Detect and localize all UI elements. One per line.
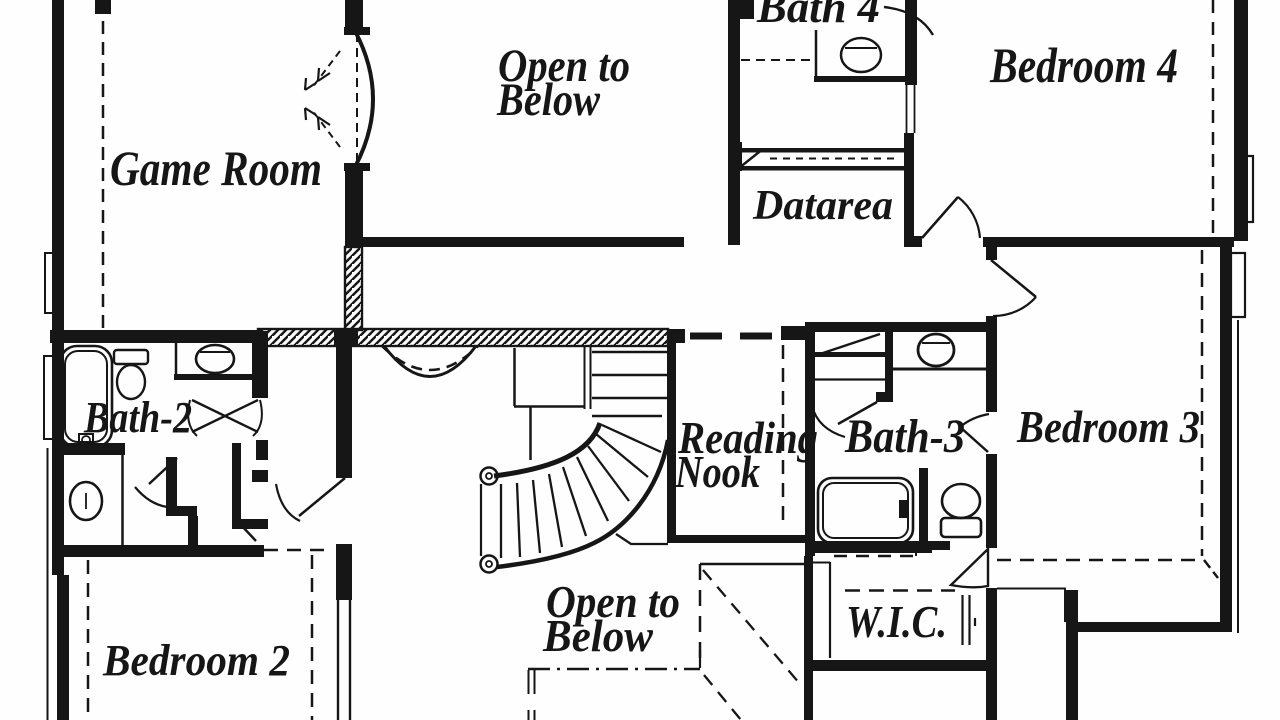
svg-text:Game Room: Game Room — [110, 140, 322, 196]
svg-text:Bath-2: Bath-2 — [83, 393, 192, 442]
svg-text:W.I.C.: W.I.C. — [846, 596, 947, 647]
svg-text:Nook: Nook — [674, 446, 760, 497]
svg-text:Datarea: Datarea — [752, 183, 893, 229]
svg-text:Bath 4: Bath 4 — [756, 0, 880, 32]
svg-text:Bath-3: Bath-3 — [844, 410, 965, 463]
svg-text:Bedroom 4: Bedroom 4 — [989, 37, 1178, 93]
svg-text:Bedroom 3: Bedroom 3 — [1016, 401, 1200, 452]
svg-text:Below: Below — [542, 610, 653, 661]
svg-text:Bedroom 2: Bedroom 2 — [102, 636, 290, 685]
svg-text:Below: Below — [496, 74, 600, 126]
